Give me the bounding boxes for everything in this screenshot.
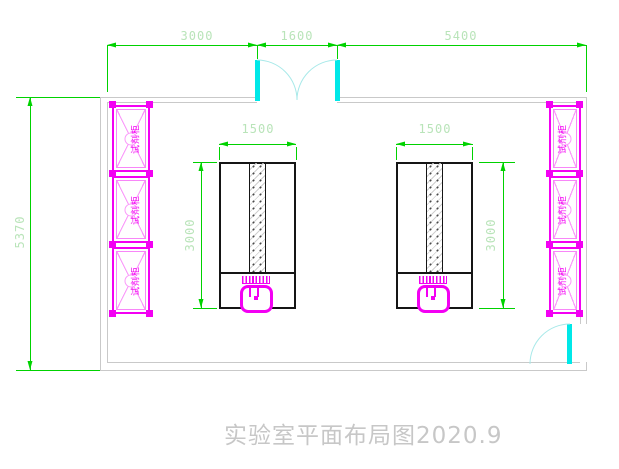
dim-text-top-middle: 1600 — [281, 29, 314, 43]
dim-text-bench-left-length: 3000 — [183, 219, 197, 252]
door-swing-arcs — [257, 60, 570, 364]
dim-text-bench-left-width: 1500 — [242, 122, 275, 136]
drawing-title: 实验室平面布局图2020.9 — [224, 416, 502, 450]
drawing-overlay — [0, 0, 619, 469]
floor-plan-canvas: 试剂柜 试剂柜 试剂柜 试剂柜 试剂柜 试剂柜 — [0, 0, 619, 469]
dim-text-room-height: 5370 — [13, 216, 27, 249]
dim-text-top-left: 3000 — [181, 29, 214, 43]
dim-text-bench-right-width: 1500 — [419, 122, 452, 136]
dimension-arrowheads — [28, 43, 587, 371]
dim-text-top-right: 5400 — [445, 29, 478, 43]
dim-text-bench-right-length: 3000 — [484, 219, 498, 252]
